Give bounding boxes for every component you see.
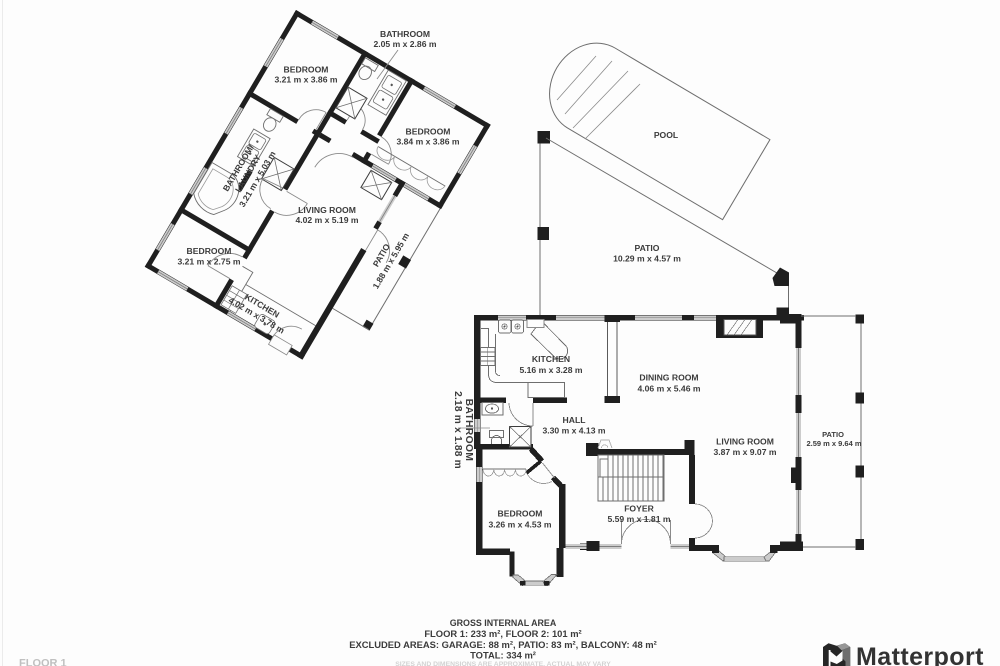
svg-text:TOTAL: 334 m²: TOTAL: 334 m² [470, 650, 536, 661]
svg-text:Matterport: Matterport [856, 643, 984, 666]
svg-text:BATHROOM: BATHROOM [380, 29, 430, 39]
svg-text:SIZES AND DIMENSIONS ARE APPRO: SIZES AND DIMENSIONS ARE APPROXIMATE, AC… [395, 661, 611, 666]
svg-text:3.30 m x 4.13 m: 3.30 m x 4.13 m [542, 426, 605, 436]
svg-text:FOYER: FOYER [624, 504, 654, 514]
svg-text:5.16 m x 3.28 m: 5.16 m x 3.28 m [519, 365, 582, 375]
svg-text:2.59 m x 9.64 m: 2.59 m x 9.64 m [806, 439, 861, 448]
svg-text:GROSS INTERNAL AREA: GROSS INTERNAL AREA [450, 618, 557, 628]
svg-text:2.18 m x 1.88 m: 2.18 m x 1.88 m [452, 391, 463, 469]
svg-text:3.21 m x 2.75 m: 3.21 m x 2.75 m [177, 256, 240, 266]
svg-text:10.29 m x 4.57 m: 10.29 m x 4.57 m [613, 254, 681, 264]
svg-text:3.21 m x 3.86 m: 3.21 m x 3.86 m [274, 75, 337, 85]
svg-text:4.06 m x 5.46 m: 4.06 m x 5.46 m [637, 384, 700, 394]
svg-text:HALL: HALL [563, 415, 586, 425]
svg-text:LIVING ROOM: LIVING ROOM [716, 437, 774, 447]
svg-text:POOL: POOL [654, 130, 678, 140]
svg-text:BATHROOM: BATHROOM [463, 399, 474, 461]
svg-text:PATIO: PATIO [822, 430, 844, 439]
svg-text:3.26 m x 4.53 m: 3.26 m x 4.53 m [488, 520, 551, 530]
svg-text:PATIO: PATIO [635, 243, 660, 253]
svg-text:3.84 m x 3.86 m: 3.84 m x 3.86 m [396, 137, 459, 147]
svg-text:3.87 m x 9.07 m: 3.87 m x 9.07 m [713, 447, 776, 457]
svg-text:BEDROOM: BEDROOM [187, 246, 232, 256]
svg-text:EXCLUDED AREAS: GARAGE: 88 m²,: EXCLUDED AREAS: GARAGE: 88 m², PATIO: 83… [349, 639, 657, 650]
svg-text:BEDROOM: BEDROOM [284, 64, 329, 74]
svg-text:BEDROOM: BEDROOM [406, 126, 451, 136]
svg-text:FLOOR 1: FLOOR 1 [19, 658, 67, 666]
svg-text:5.59 m x 1.81 m: 5.59 m x 1.81 m [607, 514, 670, 524]
svg-text:LIVING ROOM: LIVING ROOM [298, 205, 356, 215]
svg-text:4.02 m x 5.19 m: 4.02 m x 5.19 m [295, 215, 358, 225]
svg-text:FLOOR 1: 233 m², FLOOR 2: 101: FLOOR 1: 233 m², FLOOR 2: 101 m² [424, 628, 581, 639]
svg-text:2.05 m x 2.86 m: 2.05 m x 2.86 m [373, 39, 436, 49]
svg-text:KITCHEN: KITCHEN [532, 354, 570, 364]
svg-text:BEDROOM: BEDROOM [498, 509, 543, 519]
svg-text:DINING ROOM: DINING ROOM [639, 373, 698, 383]
